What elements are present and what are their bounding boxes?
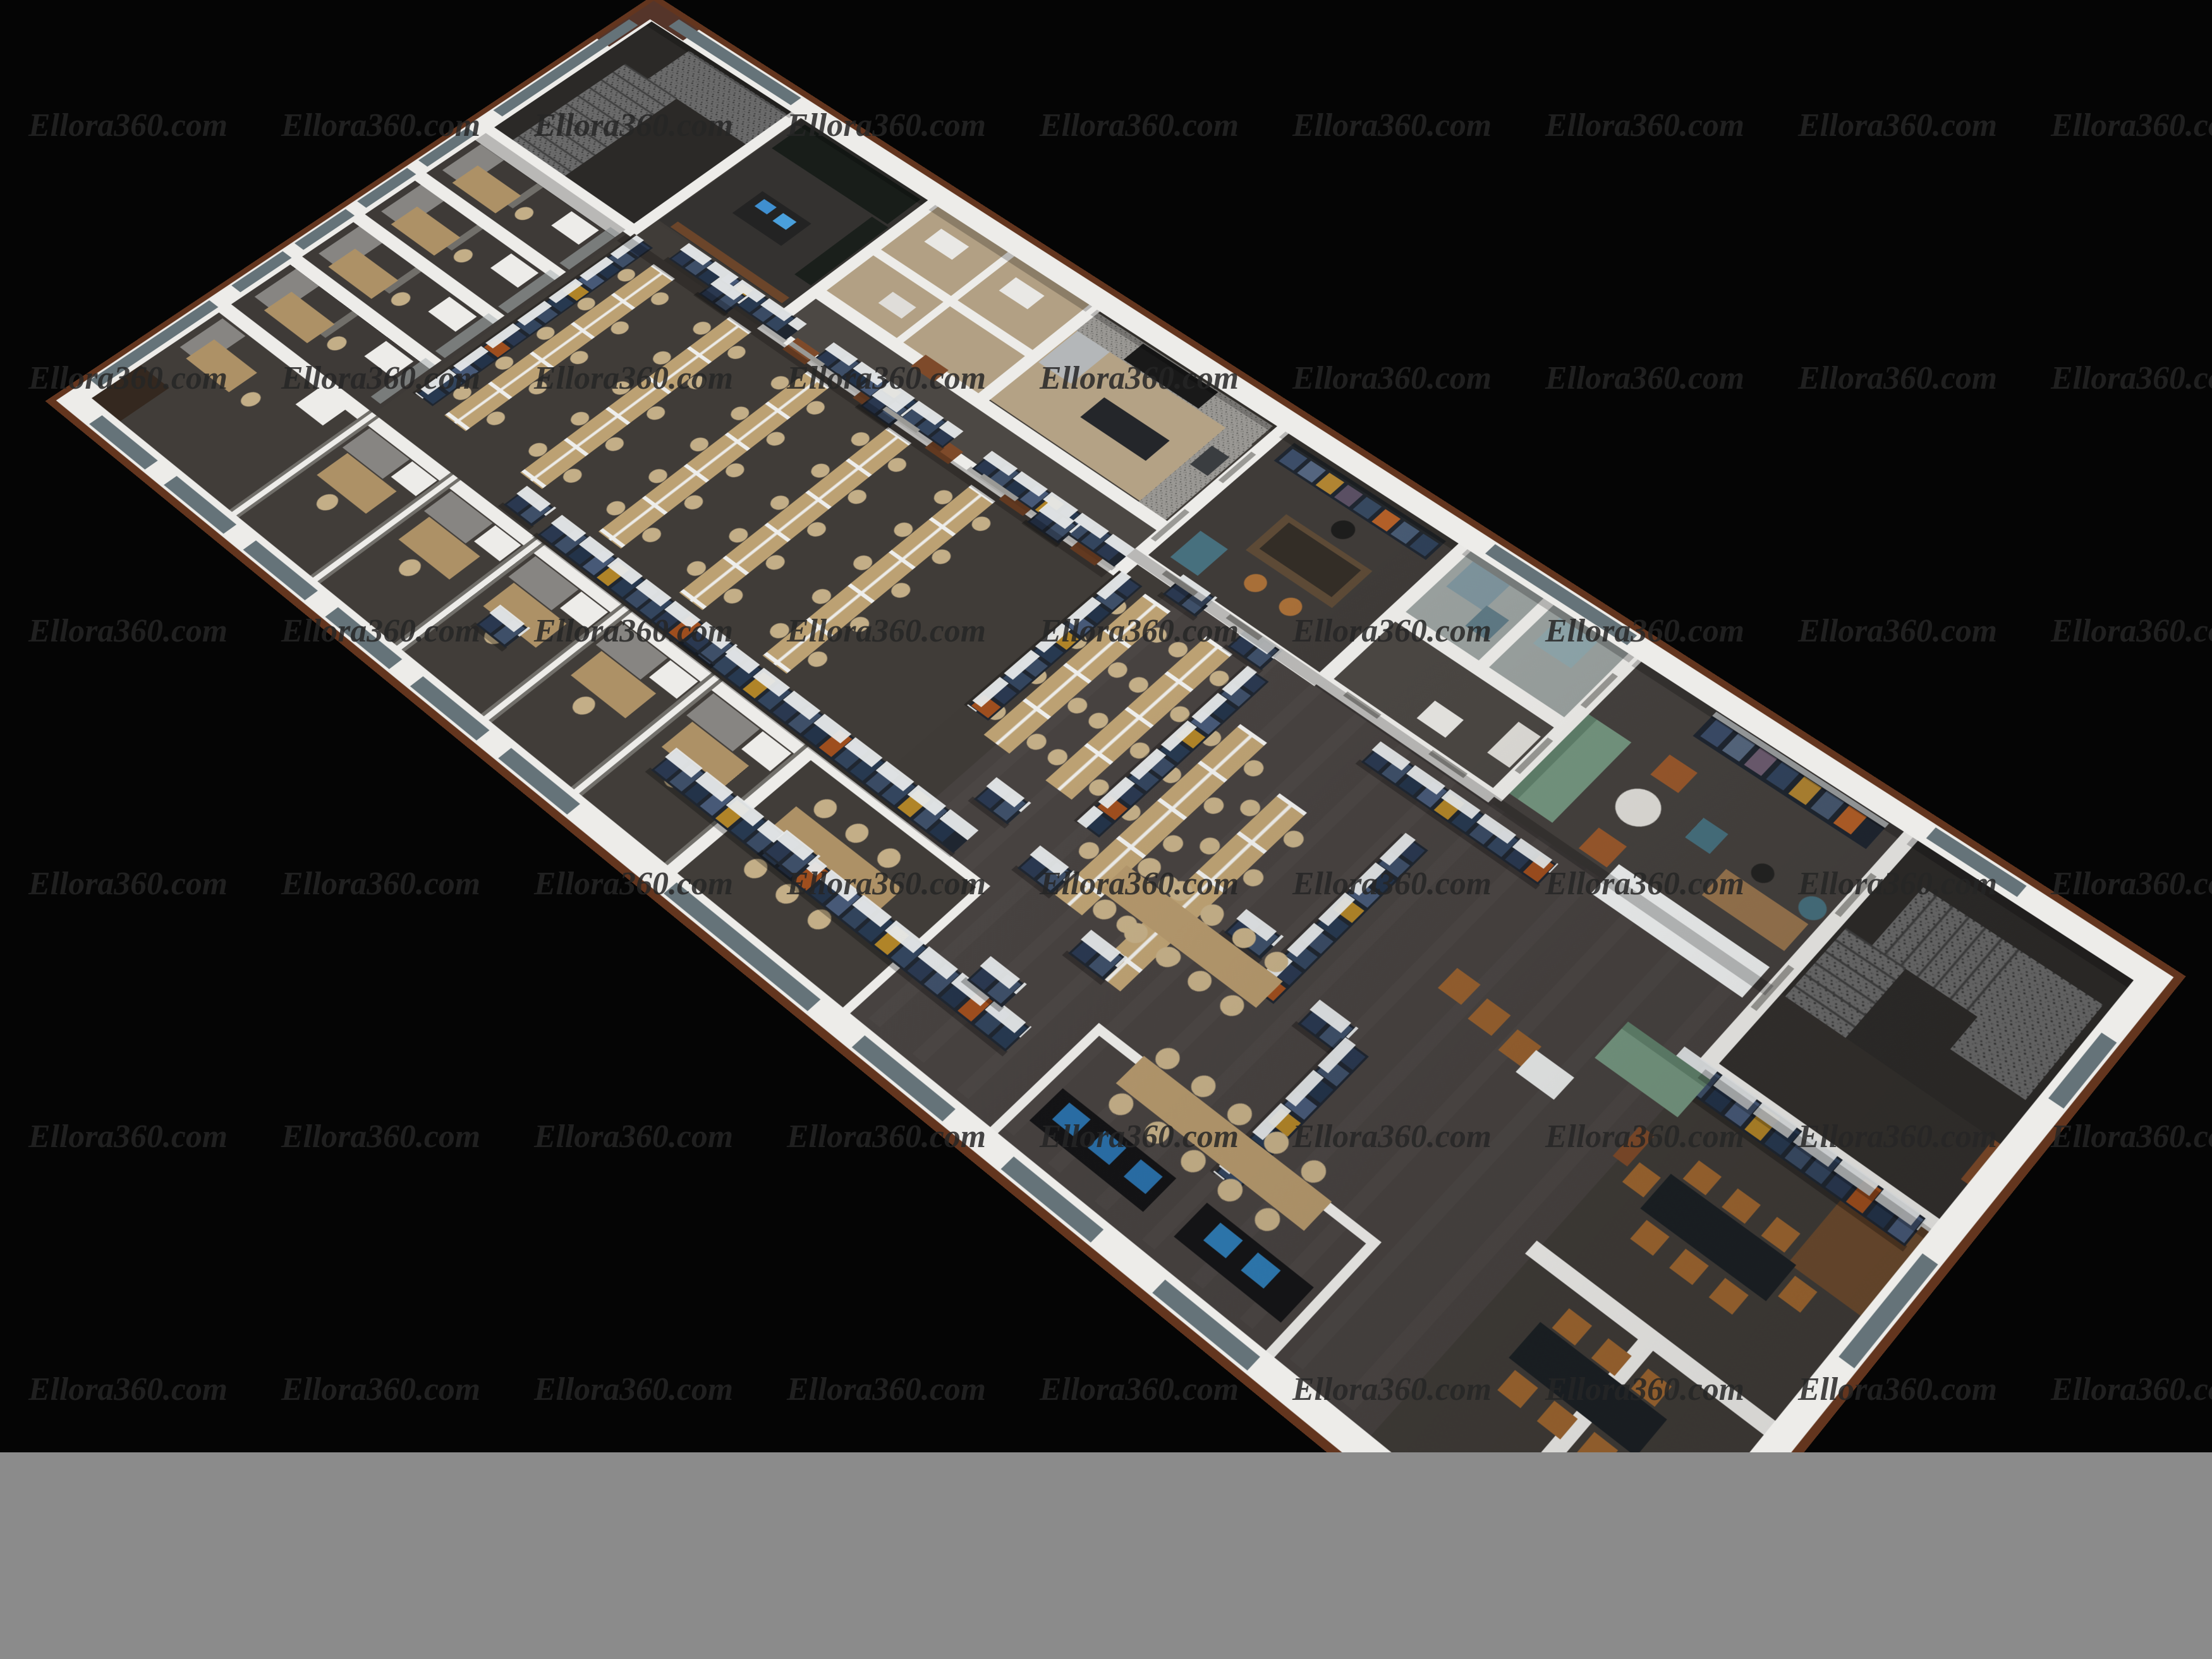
svg-text:Ellora360.com: Ellora360.com <box>1039 1371 1239 1407</box>
svg-text:Ellora360.com: Ellora360.com <box>28 360 228 396</box>
svg-text:Ellora360.com: Ellora360.com <box>1797 107 1997 143</box>
svg-text:Ellora360.com: Ellora360.com <box>786 360 986 396</box>
svg-text:Ellora360.com: Ellora360.com <box>1545 1119 1744 1155</box>
svg-text:Ellora360.com: Ellora360.com <box>1797 1119 1997 1155</box>
svg-text:Ellora360.com: Ellora360.com <box>1039 866 1239 902</box>
svg-text:Ellora360.com: Ellora360.com <box>1797 613 1997 649</box>
svg-text:Ellora360.com: Ellora360.com <box>28 866 228 902</box>
svg-text:Ellora360.com: Ellora360.com <box>1545 866 1744 902</box>
svg-text:Ellora360.com: Ellora360.com <box>533 1371 733 1407</box>
svg-text:Ellora360.com: Ellora360.com <box>1545 360 1744 396</box>
svg-text:Ellora360.com: Ellora360.com <box>1797 866 1997 902</box>
svg-text:Ellora360.com: Ellora360.com <box>1039 107 1239 143</box>
svg-text:Ellora360.com: Ellora360.com <box>1545 107 1744 143</box>
svg-text:Ellora360.com: Ellora360.com <box>28 1119 228 1155</box>
svg-text:Ellora360.com: Ellora360.com <box>2050 613 2212 649</box>
svg-text:Ellora360.com: Ellora360.com <box>1292 360 1492 396</box>
svg-text:Ellora360.com: Ellora360.com <box>786 107 986 143</box>
svg-text:Ellora360.com: Ellora360.com <box>281 107 480 143</box>
svg-text:Ellora360.com: Ellora360.com <box>1292 1371 1492 1407</box>
svg-text:Ellora360.com: Ellora360.com <box>1039 613 1239 649</box>
svg-text:Ellora360.com: Ellora360.com <box>1292 866 1492 902</box>
svg-text:Ellora360.com: Ellora360.com <box>786 866 986 902</box>
svg-text:Ellora360.com: Ellora360.com <box>281 613 480 649</box>
svg-text:Ellora360.com: Ellora360.com <box>1797 1371 1997 1407</box>
svg-text:Ellora360.com: Ellora360.com <box>786 1371 986 1407</box>
svg-text:Ellora360.com: Ellora360.com <box>1545 613 1744 649</box>
svg-text:Ellora360.com: Ellora360.com <box>2050 866 2212 902</box>
svg-text:Ellora360.com: Ellora360.com <box>2050 1119 2212 1155</box>
svg-text:Ellora360.com: Ellora360.com <box>533 613 733 649</box>
svg-text:Ellora360.com: Ellora360.com <box>786 613 986 649</box>
svg-text:Ellora360.com: Ellora360.com <box>1292 613 1492 649</box>
svg-text:Ellora360.com: Ellora360.com <box>533 866 733 902</box>
svg-text:Ellora360.com: Ellora360.com <box>281 1371 480 1407</box>
svg-text:Ellora360.com: Ellora360.com <box>281 360 480 396</box>
svg-text:Ellora360.com: Ellora360.com <box>28 1371 228 1407</box>
svg-text:Ellora360.com: Ellora360.com <box>1545 1371 1744 1407</box>
svg-text:Ellora360.com: Ellora360.com <box>2050 107 2212 143</box>
svg-text:Ellora360.com: Ellora360.com <box>533 1119 733 1155</box>
svg-text:Ellora360.com: Ellora360.com <box>1039 1119 1239 1155</box>
svg-text:Ellora360.com: Ellora360.com <box>786 1119 986 1155</box>
svg-text:Ellora360.com: Ellora360.com <box>28 613 228 649</box>
svg-text:Ellora360.com: Ellora360.com <box>533 360 733 396</box>
svg-text:Ellora360.com: Ellora360.com <box>281 1119 480 1155</box>
svg-text:Ellora360.com: Ellora360.com <box>2050 1371 2212 1407</box>
svg-text:Ellora360.com: Ellora360.com <box>1039 360 1239 396</box>
svg-text:Ellora360.com: Ellora360.com <box>533 107 733 143</box>
svg-text:Ellora360.com: Ellora360.com <box>281 866 480 902</box>
svg-text:Ellora360.com: Ellora360.com <box>1292 1119 1492 1155</box>
svg-text:Ellora360.com: Ellora360.com <box>1292 107 1492 143</box>
svg-text:Ellora360.com: Ellora360.com <box>2050 360 2212 396</box>
svg-text:Ellora360.com: Ellora360.com <box>28 107 228 143</box>
svg-text:Ellora360.com: Ellora360.com <box>1797 360 1997 396</box>
